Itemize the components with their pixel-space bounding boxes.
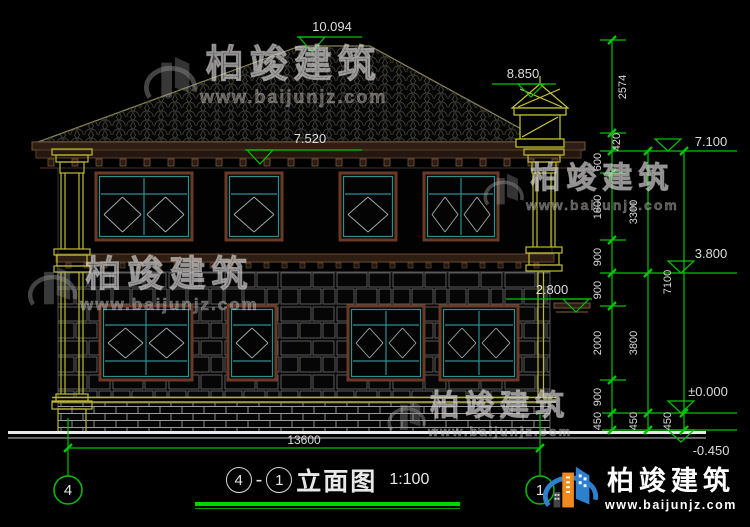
brick-base bbox=[58, 403, 550, 432]
dim-2574: 2574 bbox=[617, 75, 629, 99]
level-canopy: 2.800 bbox=[536, 282, 569, 297]
dim-total-width: 13600 bbox=[287, 433, 321, 447]
level-plate: 7.100 bbox=[695, 134, 728, 149]
dim-450-b: 450 bbox=[628, 412, 640, 430]
window bbox=[100, 306, 192, 380]
window bbox=[440, 306, 518, 380]
level-site: -0.450 bbox=[693, 443, 730, 458]
dim-420: 420 bbox=[611, 133, 623, 151]
dim-3300: 3300 bbox=[628, 200, 640, 224]
elevation-drawing-canvas: 10.094 8.850 7.520 7.100 3.800 2.800 ±0.… bbox=[0, 0, 750, 527]
company-logo-site: www.baijunjz.com bbox=[605, 498, 737, 512]
drawing-title: 立面图 bbox=[296, 462, 377, 498]
dim-1800: 1800 bbox=[592, 195, 604, 219]
title-axis-start-bubble: 4 bbox=[226, 467, 252, 493]
level-zero: ±0.000 bbox=[688, 384, 728, 399]
eave-dentils bbox=[48, 159, 558, 166]
plinth-trim bbox=[52, 398, 556, 403]
dim-7100: 7100 bbox=[662, 270, 674, 294]
window bbox=[228, 306, 276, 380]
dim-3800: 3800 bbox=[628, 331, 640, 355]
window bbox=[96, 173, 192, 240]
title-axis-end-bubble: 1 bbox=[266, 467, 292, 493]
company-logo-icon bbox=[541, 459, 601, 521]
elevation-drawing: 10.094 8.850 7.520 7.100 3.800 2.800 ±0.… bbox=[0, 0, 750, 527]
dim-450-a: 450 bbox=[592, 412, 604, 430]
company-logo-brand: 柏竣建筑 bbox=[607, 468, 735, 495]
window bbox=[340, 173, 396, 240]
dim-900-a: 900 bbox=[592, 248, 604, 266]
floor-band bbox=[56, 254, 554, 268]
window bbox=[226, 173, 282, 240]
title-separator: - bbox=[256, 469, 263, 492]
title-block: 4 - 1 立面图 1:100 bbox=[195, 462, 460, 509]
dim-900-b: 900 bbox=[592, 281, 604, 299]
window bbox=[348, 306, 424, 380]
company-logo: 柏竣建筑 www.baijunjz.com bbox=[541, 458, 749, 522]
level-chimney: 8.850 bbox=[507, 66, 540, 81]
dim-600: 600 bbox=[592, 153, 604, 171]
grid-bubble-left: 4 bbox=[64, 482, 72, 499]
ground-line bbox=[8, 433, 706, 439]
dim-2000: 2000 bbox=[592, 331, 604, 355]
window bbox=[424, 173, 498, 240]
title-underline bbox=[195, 502, 460, 506]
level-ridge: 10.094 bbox=[312, 19, 352, 34]
dim-450-c: 450 bbox=[662, 412, 674, 430]
level-floor2: 3.800 bbox=[695, 246, 728, 261]
roof bbox=[38, 46, 545, 142]
dim-900-c: 900 bbox=[592, 388, 604, 406]
drawing-scale: 1:100 bbox=[389, 471, 429, 489]
level-eave: 7.520 bbox=[294, 131, 327, 146]
title-underline-thin bbox=[195, 508, 460, 509]
